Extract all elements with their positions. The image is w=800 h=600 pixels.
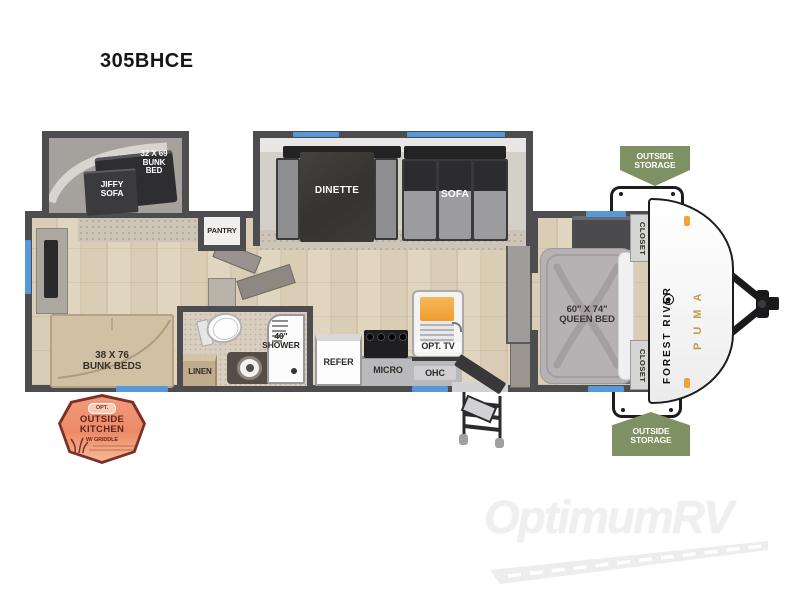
shower-drain (291, 368, 297, 374)
dinette-bench-left (276, 158, 300, 240)
page-title: 305BHCE (100, 50, 194, 73)
dinette-bench-right (374, 158, 398, 240)
closet-top-label: CLOSET (638, 217, 646, 261)
closet-bottom-label: CLOSET (638, 343, 646, 389)
bedroom-wall-lower (530, 330, 538, 392)
burner-icon (366, 333, 374, 341)
jiffy-sofa-label: JIFFY SOFA (89, 180, 135, 198)
window-bottom-kitchen (412, 386, 448, 392)
rack-pin-icon (621, 408, 625, 412)
pantry-label: PANTRY (204, 217, 240, 244)
rack-pin-icon (669, 408, 673, 412)
window-bedroom-bottom (588, 386, 624, 392)
badge-outside-storage-top: OUTSIDE STORAGE (620, 146, 690, 186)
window-bottom-rear (116, 386, 168, 392)
badge-outside-kitchen-inner: OPT. OUTSIDE KITCHEN W/ GRIDDLE (61, 397, 143, 461)
grass-icon (69, 437, 139, 455)
window-rear-wall (25, 240, 31, 294)
sofa-label: SOFA (425, 190, 485, 201)
linen-label: LINEN (183, 368, 217, 377)
watermark-road-icon (490, 532, 776, 588)
entry-steps (448, 390, 514, 448)
badge-outside-kitchen: OPT. OUTSIDE KITCHEN W/ GRIDDLE (58, 394, 146, 464)
forest-river-logo-icon (663, 294, 674, 305)
burner-icon (388, 333, 396, 341)
refer-label: REFER (317, 341, 360, 383)
opt-pill: OPT. (88, 403, 116, 414)
carpet-patch-rear (78, 218, 204, 242)
rear-wall (25, 211, 32, 392)
puma-text: PUMA (692, 258, 704, 350)
window-bedroom-top (586, 211, 626, 217)
stove (364, 330, 408, 358)
burner-icon (377, 333, 385, 341)
dinette-label: DINETTE (300, 186, 374, 197)
burner-icon (399, 333, 407, 341)
marker-light-top (684, 216, 690, 226)
shower-label: 40" SHOWER (257, 332, 305, 351)
refrigerator: REFER (315, 334, 362, 386)
hitch (728, 262, 782, 346)
rear-bunks-label: 38 X 76 BUNK BEDS (52, 350, 172, 372)
bunk-bed-label: 32 X 69 BUNK BED (125, 150, 183, 176)
watermark-optimumrv: OptimumRV (480, 486, 780, 596)
dinette-sofa-slide: DINETTE SOFA (253, 131, 533, 246)
rack-pin-icon (671, 192, 675, 196)
marker-light-bottom (684, 378, 690, 388)
window-slide-dinette (293, 132, 339, 137)
toilet (196, 309, 247, 353)
rack-pin-icon (619, 192, 623, 196)
bunk-slide: 32 X 69 BUNK BED JIFFY SOFA (42, 131, 189, 218)
dinette-table (300, 152, 374, 242)
sofa-back-bar (404, 146, 506, 159)
rear-tv (44, 240, 58, 298)
kitchen-island: OPT. TV (412, 290, 464, 358)
outside-storage-top-label: OUTSIDE STORAGE (620, 146, 690, 170)
floorplan-page: 305BHCE OptimumRV 32 X 69 BUNK BED JIFFY… (0, 0, 800, 600)
island-sink (420, 321, 454, 342)
micro-label: MICRO (366, 366, 410, 376)
outside-kitchen-line2: KITCHEN (61, 425, 143, 435)
window-slide-sofa (407, 132, 505, 137)
opt-tv-label: OPT. TV (415, 342, 461, 352)
queen-bed-label: 60" X 74" QUEEN BED (547, 305, 627, 326)
bathroom: LINEN 40" SHOWER (177, 306, 313, 392)
bed-head-cabinet-top (572, 216, 632, 250)
ohc-label: OHC (414, 366, 456, 380)
pantry: PANTRY (198, 211, 246, 251)
cutting-board (420, 297, 454, 321)
badge-outside-storage-bottom: OUTSIDE STORAGE (612, 412, 690, 456)
front-cap: FOREST RIVER PUMA (648, 198, 734, 404)
faucet-icon (452, 322, 462, 332)
rear-bunk-beds: 38 X 76 BUNK BEDS (50, 314, 174, 388)
